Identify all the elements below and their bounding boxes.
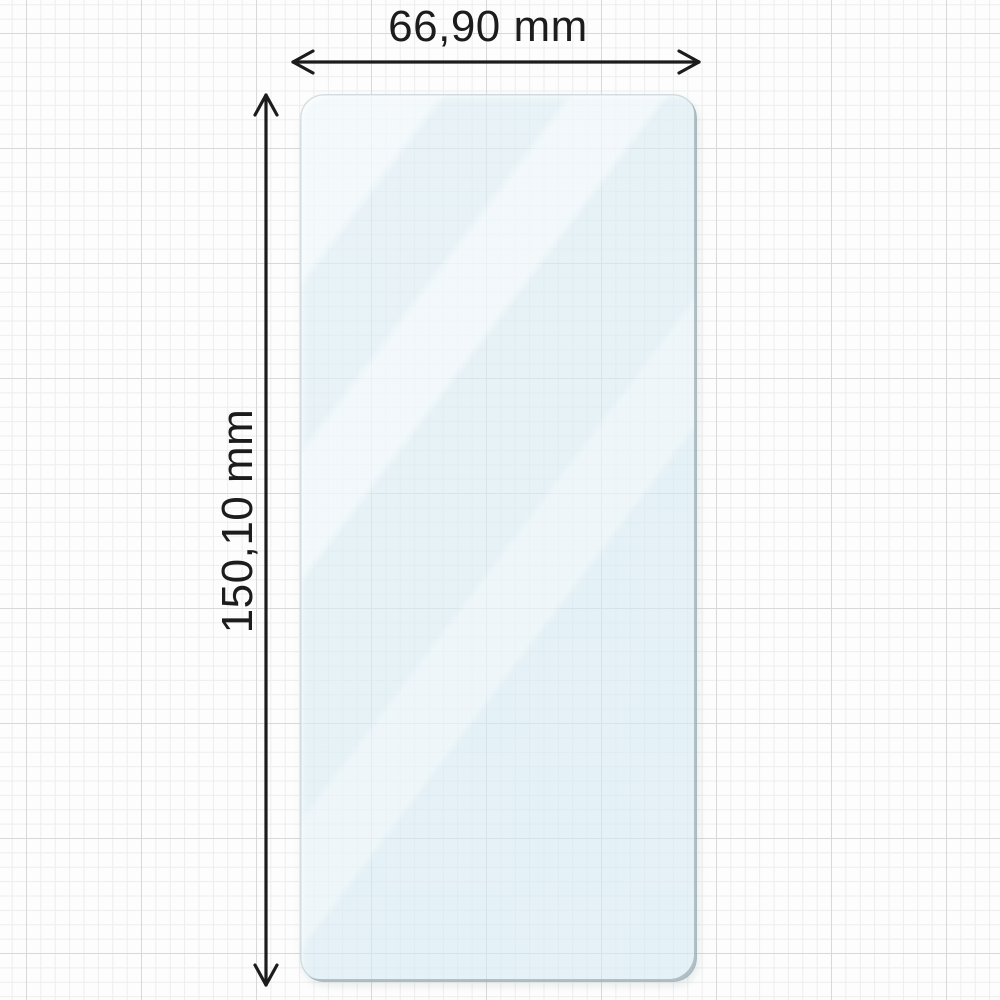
width-dimension-label: 66,90 mm <box>288 2 688 52</box>
screen-protector-glass <box>300 94 697 982</box>
width-dimension-arrow-icon <box>286 47 706 77</box>
dimension-diagram: 66,90 mm 150,10 mm <box>0 0 1000 1000</box>
height-dimension-arrow-icon <box>251 88 281 992</box>
